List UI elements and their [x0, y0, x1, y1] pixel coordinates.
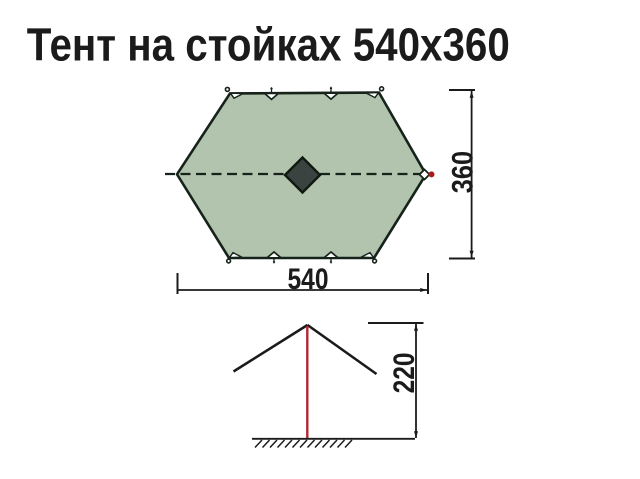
svg-text:Тент на стойках 540x360: Тент на стойках 540x360 [27, 19, 510, 71]
svg-text:220: 220 [388, 352, 421, 393]
svg-text:540: 540 [288, 263, 329, 296]
svg-text:360: 360 [446, 151, 479, 193]
